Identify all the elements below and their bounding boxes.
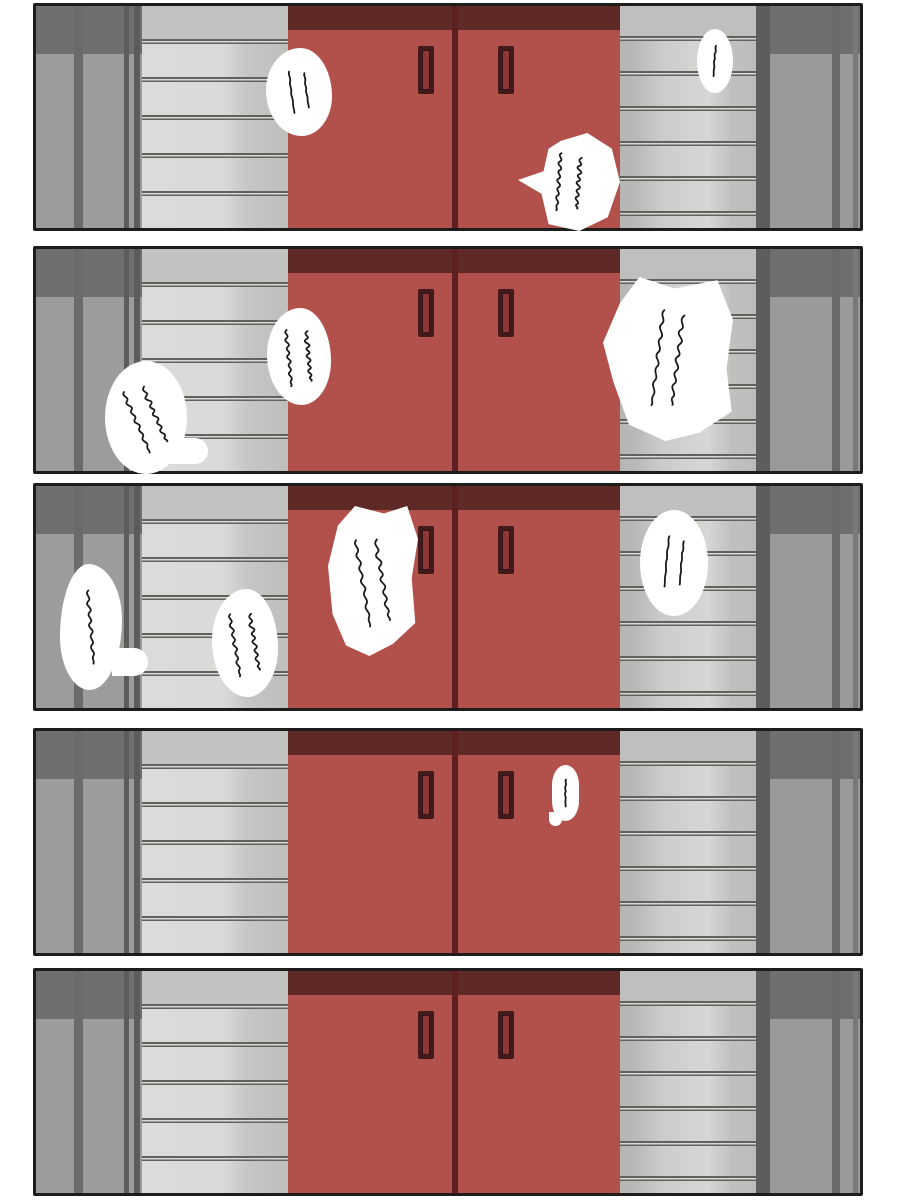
right-wall-top-band: [620, 731, 756, 761]
left-column-stripe: [134, 971, 140, 1193]
left-door-top-band: [288, 731, 452, 755]
elevator-scene: [36, 6, 860, 228]
right-wall-top-band: [620, 6, 756, 36]
panel-1: [33, 3, 863, 231]
scribble-text: [283, 66, 314, 117]
left-column-stripe: [134, 731, 140, 953]
left-striped-wall: [142, 6, 288, 228]
right-door-top-band: [458, 249, 620, 273]
right-door-handle: [498, 289, 514, 337]
scribble-text: [561, 778, 571, 809]
right-door-handle-inset: [502, 1015, 510, 1055]
right-door-handle: [498, 526, 514, 574]
speech-bubble: [603, 277, 733, 441]
left-door: [288, 971, 452, 1193]
right-door-handle-inset: [502, 775, 510, 815]
left-column-stripe: [74, 731, 83, 953]
right-column: [756, 971, 860, 1193]
speech-bubble: [105, 361, 187, 474]
right-column-stripe: [756, 6, 770, 228]
speech-bubble: [552, 765, 579, 821]
left-column-stripe: [134, 6, 140, 228]
scribble-line: [570, 156, 589, 210]
left-striped-wall: [142, 971, 288, 1193]
left-column-stripe: [124, 731, 129, 953]
scribble-line: [674, 538, 688, 589]
right-door-handle-inset: [502, 293, 510, 333]
right-striped-wall: [620, 6, 756, 228]
panel-5: [33, 968, 863, 1196]
right-column-shadow: [756, 249, 860, 297]
right-column-stripe: [756, 486, 770, 708]
right-striped-wall: [620, 731, 756, 953]
left-column: [36, 971, 142, 1193]
scribble-line: [659, 533, 674, 592]
left-wall-top-band: [142, 6, 288, 39]
panel-3: [33, 483, 863, 711]
right-column-stripe: [853, 249, 858, 471]
right-column-shadow: [756, 6, 860, 54]
right-column-stripe: [756, 249, 770, 471]
speech-bubble: [328, 506, 418, 656]
left-column-stripe: [124, 971, 129, 1193]
right-column-stripe: [756, 731, 770, 953]
right-door-top-band: [458, 6, 620, 30]
right-striped-wall: [620, 971, 756, 1193]
left-column-stripe: [74, 249, 83, 471]
right-door: [452, 971, 620, 1193]
left-door: [288, 731, 452, 953]
right-wall-top-band: [620, 971, 756, 1001]
left-striped-wall: [142, 731, 288, 953]
right-door-handle: [498, 771, 514, 819]
left-column-stripe: [124, 6, 129, 228]
scribble-line: [709, 43, 721, 79]
left-door-handle: [418, 46, 434, 94]
right-column-stripe: [832, 731, 840, 953]
right-door-handle: [498, 1011, 514, 1059]
right-column-stripe: [832, 6, 840, 228]
scribble-line: [80, 587, 102, 666]
scribble-line: [278, 327, 299, 388]
right-column-stripe: [832, 249, 840, 471]
right-column-stripe: [832, 486, 840, 708]
scribble-text: [549, 150, 588, 213]
scribble-line: [299, 329, 319, 382]
elevator-scene: [36, 971, 860, 1193]
scribble-text: [80, 587, 102, 666]
right-door-handle: [498, 46, 514, 94]
right-door-handle-inset: [502, 50, 510, 90]
left-wall-top-band: [142, 731, 288, 764]
left-wall-top-band: [142, 249, 288, 282]
right-column-stripe: [853, 731, 858, 953]
left-door-handle: [418, 1011, 434, 1059]
panel-4: [33, 728, 863, 956]
speech-bubble: [266, 48, 332, 136]
left-column-stripe: [74, 6, 83, 228]
right-wall-top-band: [620, 249, 756, 279]
speech-bubble: [212, 589, 278, 697]
right-column-stripe: [853, 6, 858, 228]
left-wall-top-band: [142, 486, 288, 519]
scribble-line: [283, 69, 300, 118]
left-door-handle-inset: [422, 50, 430, 90]
left-door-handle: [418, 289, 434, 337]
comic-page: [0, 0, 900, 1200]
scribble-text: [222, 607, 268, 679]
right-door: [452, 249, 620, 471]
right-column-stripe: [756, 971, 770, 1193]
scribble-text: [709, 43, 721, 79]
right-door: [452, 731, 620, 953]
right-column-shadow: [756, 731, 860, 779]
left-door-top-band: [288, 6, 452, 30]
left-door-top-band: [288, 971, 452, 995]
scribble-line: [561, 778, 571, 809]
elevator-scene: [36, 731, 860, 953]
left-door-handle-inset: [422, 1015, 430, 1055]
speech-bubble: [697, 29, 733, 93]
right-door-top-band: [458, 971, 620, 995]
right-column-shadow: [756, 486, 860, 534]
left-door-handle-inset: [422, 775, 430, 815]
left-door-handle: [418, 771, 434, 819]
left-column: [36, 6, 142, 228]
left-column: [36, 731, 142, 953]
right-column-shadow: [756, 971, 860, 1019]
right-door-top-band: [458, 486, 620, 510]
elevator-scene: [36, 486, 860, 708]
right-wall-top-band: [620, 486, 756, 516]
left-wall-top-band: [142, 971, 288, 1004]
right-column-stripe: [853, 971, 858, 1193]
right-column: [756, 249, 860, 471]
scribble-text: [278, 325, 319, 388]
left-door-handle-inset: [422, 530, 430, 570]
right-column: [756, 486, 860, 708]
scribble-text: [659, 533, 689, 593]
left-door-top-band: [288, 249, 452, 273]
right-door-top-band: [458, 731, 620, 755]
left-door-handle: [418, 526, 434, 574]
right-column-stripe: [853, 486, 858, 708]
right-column: [756, 6, 860, 228]
left-column-stripe: [74, 971, 83, 1193]
speech-bubble: [267, 308, 331, 405]
right-column: [756, 731, 860, 953]
left-door-handle-inset: [422, 293, 430, 333]
scribble-text: [116, 378, 176, 456]
right-door: [452, 486, 620, 708]
speech-bubble: [640, 510, 708, 616]
right-door-handle-inset: [502, 530, 510, 570]
speech-bubble: [518, 133, 620, 231]
scribble-line: [299, 70, 314, 111]
right-column-stripe: [832, 971, 840, 1193]
